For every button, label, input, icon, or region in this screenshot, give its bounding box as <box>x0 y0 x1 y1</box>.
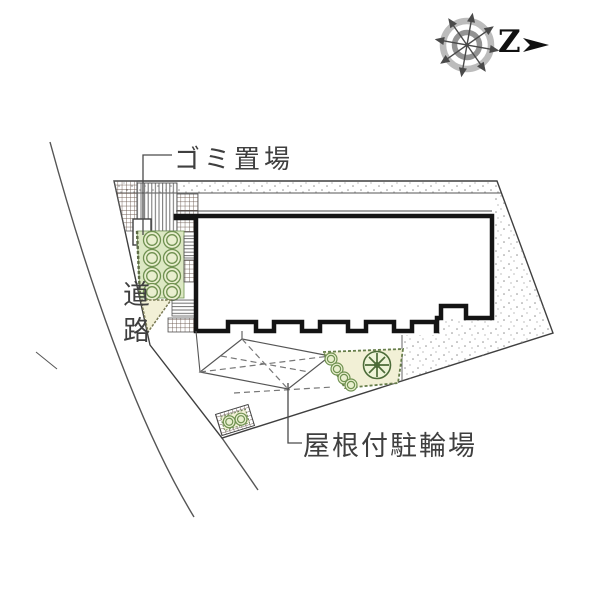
site-plan-drawing <box>0 0 600 600</box>
compass-rose <box>431 9 549 81</box>
site-plan-canvas: ゴミ置場 道路 屋根付駐輪場 Z <box>0 0 600 600</box>
road-edge-extension <box>222 438 258 490</box>
compass-north-letter: Z <box>498 24 521 60</box>
garbage-area-label: ゴミ置場 <box>174 139 294 176</box>
north-arrow-icon <box>523 38 549 52</box>
bicycle-parking-label: 屋根付駐輪場 <box>303 424 477 463</box>
entrance-steps-lower <box>172 300 196 316</box>
entrance-paving-lower <box>168 318 196 332</box>
road-label: 道路 <box>114 280 153 352</box>
tree-symbol <box>364 352 391 379</box>
road-break-tick <box>36 352 57 369</box>
